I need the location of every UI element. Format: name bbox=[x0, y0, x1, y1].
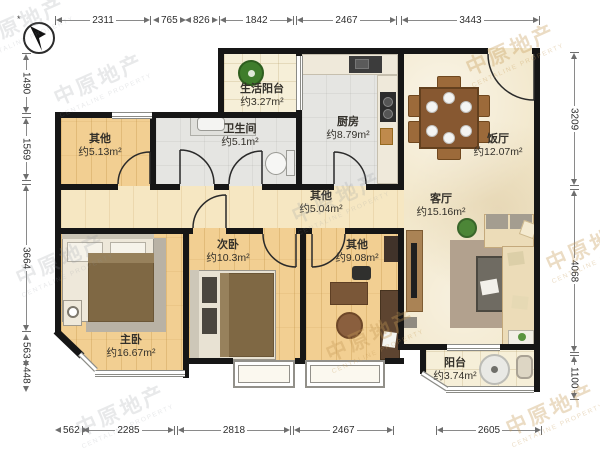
dim-line bbox=[360, 20, 390, 21]
wall bbox=[295, 358, 305, 364]
dim-end-tick bbox=[150, 16, 151, 25]
paper-908 bbox=[382, 331, 397, 348]
wall bbox=[226, 228, 263, 234]
room-name-bedroom2: 次卧 bbox=[206, 238, 249, 252]
room-label-other-908: 其他约9.08m² bbox=[335, 238, 378, 266]
wall bbox=[150, 184, 180, 190]
dim-label: 826 bbox=[191, 15, 212, 26]
room-name-kitchen: 厨房 bbox=[326, 115, 369, 129]
room-area-balcony: 约3.74m² bbox=[433, 370, 476, 384]
plant-living bbox=[457, 218, 477, 238]
dim-end-tick bbox=[570, 352, 579, 353]
plate-1 bbox=[443, 92, 455, 104]
dim-line bbox=[89, 430, 115, 431]
dim-line bbox=[184, 430, 221, 431]
plate-2 bbox=[426, 101, 438, 113]
table-908 bbox=[330, 282, 368, 305]
dim-bottom-2467: 2467 bbox=[293, 424, 394, 436]
dim-line bbox=[574, 284, 575, 346]
dim-end-tick bbox=[393, 426, 394, 435]
wardrobe-908 bbox=[384, 236, 399, 262]
dim-label: 562 bbox=[61, 425, 82, 436]
room-label-hall: 其他约5.04m² bbox=[299, 189, 342, 217]
bay-window-other908 bbox=[305, 360, 385, 388]
dim-line bbox=[303, 20, 333, 21]
dim-arrow bbox=[212, 17, 218, 23]
dim-end-tick bbox=[22, 331, 31, 332]
dim-label: 2285 bbox=[115, 425, 141, 436]
tv bbox=[411, 243, 417, 298]
dim-end-tick bbox=[293, 16, 294, 25]
window-balcony-mullion bbox=[446, 390, 534, 391]
dim-bottom-2285: 2285 bbox=[82, 424, 175, 436]
dim-right-1100: 1100 bbox=[568, 355, 580, 400]
dim-label: 765 bbox=[159, 15, 180, 26]
svg-text:*: * bbox=[17, 14, 21, 24]
dim-label: 1569 bbox=[21, 136, 32, 162]
wall bbox=[218, 112, 302, 118]
room-area-bathroom: 约5.1m² bbox=[221, 136, 258, 150]
cutting-board bbox=[380, 128, 393, 145]
room-name-dining: 饭厅 bbox=[473, 132, 522, 146]
wall bbox=[398, 48, 404, 190]
room-name-service-balcony: 生活阳台 bbox=[240, 82, 284, 96]
dim-end-tick bbox=[539, 16, 540, 25]
wall bbox=[398, 234, 404, 350]
sofa-cushion-1 bbox=[486, 214, 508, 229]
dim-top-765: 765 bbox=[153, 14, 183, 26]
wall bbox=[300, 234, 306, 364]
wall bbox=[345, 228, 404, 234]
window-master-mullion bbox=[93, 374, 185, 375]
room-label-balcony: 阳台约3.74m² bbox=[433, 356, 476, 384]
room-name-hall: 其他 bbox=[299, 189, 342, 203]
dim-left-1569: 1569 bbox=[20, 117, 32, 181]
wall bbox=[366, 184, 404, 190]
room-label-master: 主卧约16.67m² bbox=[106, 333, 155, 361]
room-label-living: 客厅约15.16m² bbox=[416, 192, 465, 220]
dim-label: 563 bbox=[21, 340, 32, 361]
dim-bottom-2818: 2818 bbox=[177, 424, 291, 436]
dim-line bbox=[62, 20, 90, 21]
wall bbox=[420, 350, 426, 374]
dim-line bbox=[502, 430, 535, 431]
dim-line bbox=[484, 20, 533, 21]
dim-end-tick bbox=[541, 426, 542, 435]
room-label-bedroom2: 次卧约10.3m² bbox=[206, 238, 249, 266]
wall bbox=[534, 48, 540, 392]
dim-label: 448 bbox=[21, 365, 32, 386]
room-area-service-balcony: 约3.27m² bbox=[240, 96, 284, 110]
dim-top-3443: 3443 bbox=[401, 14, 540, 26]
dim-top-2311: 2311 bbox=[55, 14, 151, 26]
room-area-dining: 约12.07m² bbox=[473, 146, 522, 160]
plate-3 bbox=[426, 125, 438, 137]
floor-hallway bbox=[61, 186, 404, 228]
dim-left-563: 563 bbox=[20, 334, 32, 357]
room-area-master: 约16.67m² bbox=[106, 347, 155, 361]
room-label-bathroom: 卫生间约5.1m² bbox=[221, 122, 258, 150]
blanket-bedroom2-edge bbox=[220, 273, 229, 357]
room-area-other-513: 约5.13m² bbox=[78, 146, 121, 160]
room-name-bathroom: 卫生间 bbox=[221, 122, 258, 136]
dim-end-tick bbox=[22, 113, 31, 114]
wall bbox=[55, 184, 118, 190]
dim-label: 4068 bbox=[569, 258, 580, 284]
dim-line bbox=[226, 20, 243, 21]
dim-label: 3443 bbox=[457, 15, 483, 26]
dim-label: 3209 bbox=[569, 106, 580, 132]
dim-line bbox=[574, 132, 575, 179]
stool-908 bbox=[336, 312, 363, 339]
dim-line bbox=[116, 20, 144, 21]
wall bbox=[214, 184, 229, 190]
dim-line bbox=[247, 430, 284, 431]
pillow-bedroom2-1 bbox=[202, 277, 217, 303]
window-living-balcony bbox=[447, 344, 500, 351]
toilet-bowl bbox=[265, 152, 287, 175]
dim-line bbox=[26, 162, 27, 174]
room-label-other-513: 其他约5.13m² bbox=[78, 132, 121, 160]
pillow-bedroom2-2 bbox=[202, 308, 217, 334]
window-master bbox=[93, 370, 185, 377]
wall bbox=[55, 228, 193, 234]
dim-arrow bbox=[23, 386, 29, 392]
room-label-kitchen: 厨房约8.79m² bbox=[326, 115, 369, 143]
dim-end-tick bbox=[570, 399, 579, 400]
dim-right-3209: 3209 bbox=[568, 52, 580, 186]
bay-window-bedroom2 bbox=[233, 360, 295, 388]
dim-label: 1100 bbox=[569, 365, 580, 391]
dim-line bbox=[574, 59, 575, 106]
dim-label: 2467 bbox=[330, 425, 356, 436]
room-label-dining: 饭厅约12.07m² bbox=[473, 132, 522, 160]
dim-left-3664: 3664 bbox=[20, 184, 32, 332]
dim-left-1490: 1490 bbox=[20, 53, 32, 114]
wall bbox=[500, 344, 540, 350]
bay-window-other908-inner bbox=[310, 365, 380, 383]
burner-1 bbox=[383, 97, 393, 107]
dim-end-tick bbox=[22, 180, 31, 181]
dim-top-2467: 2467 bbox=[296, 14, 397, 26]
dim-label: 1490 bbox=[21, 70, 32, 96]
window-room513-mullion bbox=[112, 116, 152, 117]
plate-5 bbox=[460, 125, 472, 137]
dim-line bbox=[26, 191, 27, 245]
speaker bbox=[404, 317, 417, 328]
dim-label: 2311 bbox=[90, 15, 116, 26]
dim-end-tick bbox=[396, 16, 397, 25]
paper-living bbox=[480, 279, 499, 296]
toilet-tank bbox=[286, 150, 295, 176]
wall bbox=[218, 48, 224, 118]
bay-window-bedroom2-inner bbox=[238, 365, 290, 383]
blanket-master bbox=[88, 253, 154, 322]
wall bbox=[150, 112, 156, 190]
dim-label: 1842 bbox=[243, 15, 269, 26]
dim-line bbox=[357, 430, 387, 431]
room-name-master: 主卧 bbox=[106, 333, 155, 347]
dim-line bbox=[443, 430, 476, 431]
lamp-master bbox=[67, 306, 79, 318]
chair-908 bbox=[352, 266, 371, 280]
dim-line bbox=[142, 430, 168, 431]
room-name-living: 客厅 bbox=[416, 192, 465, 206]
dim-line bbox=[300, 430, 330, 431]
room-area-kitchen: 约8.79m² bbox=[326, 129, 369, 143]
balcony-chair bbox=[516, 355, 533, 379]
wall bbox=[183, 234, 189, 378]
room-area-living: 约15.16m² bbox=[416, 206, 465, 220]
window-service-balcony bbox=[296, 56, 303, 110]
kitchen-sink-basin bbox=[355, 59, 369, 69]
dim-line bbox=[26, 97, 27, 107]
dim-line bbox=[574, 196, 575, 258]
window-service-balcony-mullion bbox=[300, 56, 301, 110]
desk-908 bbox=[380, 290, 400, 360]
dim-line bbox=[26, 60, 27, 70]
dim-line bbox=[26, 271, 27, 325]
room-area-other-908: 约9.08m² bbox=[335, 252, 378, 266]
dim-right-4068: 4068 bbox=[568, 189, 580, 353]
dim-end-tick bbox=[570, 185, 579, 186]
bed-bedroom2-headboard bbox=[190, 270, 199, 360]
room-label-service-balcony: 生活阳台约3.27m² bbox=[240, 82, 284, 110]
room-area-hall: 约5.04m² bbox=[299, 203, 342, 217]
dim-bottom-2605: 2605 bbox=[436, 424, 542, 436]
dim-left-448: 448 bbox=[20, 359, 32, 378]
watermark: 中原地产CENTALINE PROPERTY bbox=[47, 45, 154, 120]
watermark: 中原地产CENTALINE PROPERTY bbox=[69, 376, 176, 450]
plate-4 bbox=[460, 101, 472, 113]
room-name-other-908: 其他 bbox=[335, 238, 378, 252]
dim-end-tick bbox=[290, 426, 291, 435]
window-living-balcony-mullion bbox=[447, 348, 500, 349]
dim-bottom-562: 562 bbox=[55, 424, 80, 436]
dim-line bbox=[270, 20, 287, 21]
wall bbox=[55, 326, 61, 334]
wall bbox=[55, 112, 61, 332]
side-plant bbox=[518, 333, 526, 341]
room-name-other-513: 其他 bbox=[78, 132, 121, 146]
window-balcony bbox=[446, 386, 534, 393]
sofa-pillow-2 bbox=[507, 251, 525, 266]
dim-label: 2467 bbox=[333, 15, 359, 26]
plant-service-balcony-center bbox=[248, 70, 255, 77]
floorplan-canvas: * 其他约5.13m²生活阳台约3.27m²卫生间约5.1m²厨房约8.79m²… bbox=[0, 0, 600, 450]
dim-line bbox=[26, 124, 27, 136]
wall bbox=[218, 48, 488, 54]
window-room513 bbox=[112, 112, 152, 119]
dim-end-tick bbox=[174, 426, 175, 435]
sofa-pillow-3 bbox=[511, 295, 528, 310]
wall bbox=[385, 358, 404, 364]
dim-label: 2605 bbox=[476, 425, 502, 436]
wash-basin-dot bbox=[491, 366, 498, 373]
plate-6 bbox=[443, 132, 455, 144]
room-area-bedroom2: 约10.3m² bbox=[206, 252, 249, 266]
blanket-master-fold bbox=[88, 253, 154, 263]
room-name-balcony: 阳台 bbox=[433, 356, 476, 370]
dim-label: 2818 bbox=[221, 425, 247, 436]
watermark-cn: 中原地产 bbox=[47, 45, 151, 113]
burner-2 bbox=[383, 109, 393, 119]
dim-top-826: 826 bbox=[185, 14, 217, 26]
dim-line bbox=[408, 20, 457, 21]
dim-label: 3664 bbox=[21, 245, 32, 271]
dim-top-1842: 1842 bbox=[219, 14, 294, 26]
wall bbox=[183, 358, 233, 364]
